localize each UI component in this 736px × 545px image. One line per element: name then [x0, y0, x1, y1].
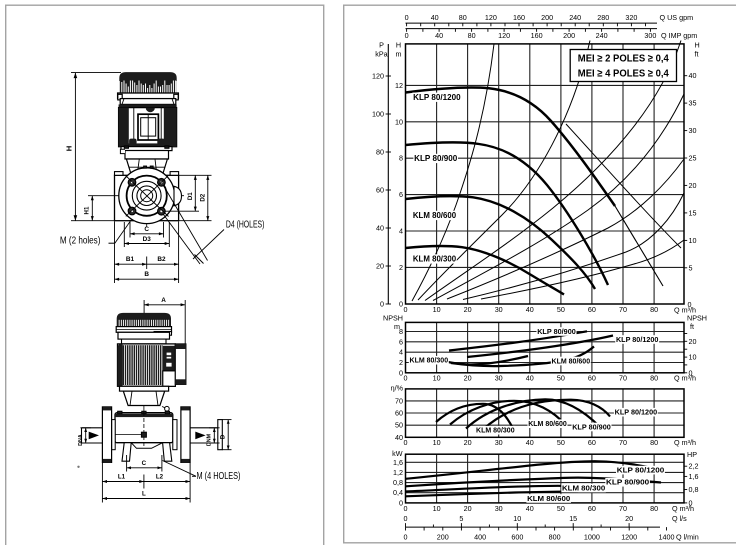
svg-text:40: 40 — [526, 373, 534, 382]
svg-text:HP: HP — [687, 450, 697, 459]
svg-text:ft: ft — [695, 50, 699, 59]
svg-text:η/%: η/% — [391, 383, 404, 392]
svg-text:20: 20 — [625, 514, 633, 523]
svg-text:KLM 80/600: KLM 80/600 — [528, 419, 567, 428]
svg-text:30: 30 — [495, 504, 503, 513]
svg-text:DNM: DNM — [207, 433, 213, 446]
svg-text:MEI ≥ 4 POLES ≥ 0,4: MEI ≥ 4 POLES ≥ 0,4 — [578, 69, 669, 80]
svg-text:10: 10 — [433, 504, 441, 513]
svg-text:1,2: 1,2 — [393, 468, 403, 477]
svg-text:15: 15 — [569, 514, 577, 523]
svg-text:200: 200 — [437, 533, 449, 542]
svg-text:30: 30 — [689, 126, 697, 135]
svg-text:0: 0 — [399, 368, 403, 377]
svg-text:280: 280 — [597, 13, 609, 22]
svg-text:10: 10 — [433, 305, 441, 314]
svg-text:H: H — [396, 41, 401, 50]
svg-text:KLP 80/1200: KLP 80/1200 — [616, 335, 659, 344]
svg-text:H: H — [64, 146, 73, 151]
svg-text:KLM 80/600: KLM 80/600 — [413, 210, 457, 220]
svg-text:120: 120 — [372, 72, 384, 81]
svg-text:ft: ft — [690, 322, 694, 331]
svg-text:30: 30 — [495, 373, 503, 382]
svg-text:2: 2 — [399, 358, 403, 367]
svg-text:80: 80 — [650, 438, 658, 447]
svg-text:Q l/min: Q l/min — [676, 533, 699, 542]
svg-text:20: 20 — [464, 504, 472, 513]
svg-text:80: 80 — [459, 13, 467, 22]
svg-text:KLM 80/300: KLM 80/300 — [476, 426, 515, 435]
svg-text:25: 25 — [689, 154, 697, 163]
svg-text:0: 0 — [404, 533, 408, 542]
svg-text:KLP 80/900: KLP 80/900 — [414, 153, 458, 163]
svg-text:15: 15 — [689, 208, 697, 217]
svg-text:0: 0 — [404, 305, 408, 314]
svg-text:L1: L1 — [118, 474, 126, 481]
svg-text:D2: D2 — [199, 193, 206, 201]
svg-text:70: 70 — [619, 438, 627, 447]
svg-text:30: 30 — [495, 438, 503, 447]
svg-text:KLP 80/1200: KLP 80/1200 — [413, 92, 461, 102]
svg-text:60: 60 — [588, 305, 596, 314]
svg-text:D1: D1 — [187, 192, 194, 200]
svg-text:40: 40 — [435, 31, 443, 40]
svg-text:2: 2 — [399, 263, 403, 272]
svg-text:320: 320 — [625, 13, 637, 22]
svg-text:Q m³/h: Q m³/h — [672, 504, 694, 513]
svg-text:1,6: 1,6 — [393, 458, 403, 467]
svg-text:KLM 80/300: KLM 80/300 — [562, 483, 605, 492]
svg-text:NPSH: NPSH — [383, 314, 403, 323]
svg-text:10: 10 — [513, 514, 521, 523]
svg-text:20: 20 — [464, 373, 472, 382]
svg-text:MEI ≥ 2 POLES ≥ 0,4: MEI ≥ 2 POLES ≥ 0,4 — [578, 54, 669, 65]
svg-text:70: 70 — [619, 504, 627, 513]
svg-text:6: 6 — [399, 190, 403, 199]
svg-text:D3: D3 — [143, 236, 152, 243]
svg-text:40: 40 — [689, 71, 697, 80]
svg-text:0: 0 — [405, 13, 409, 22]
svg-text:5: 5 — [459, 514, 463, 523]
svg-text:Q m³/h: Q m³/h — [674, 438, 696, 447]
svg-text:C: C — [142, 460, 147, 467]
svg-text:70: 70 — [619, 373, 627, 382]
svg-text:1,6: 1,6 — [689, 472, 699, 481]
svg-text:10: 10 — [689, 353, 697, 362]
svg-text:P: P — [379, 41, 384, 50]
svg-text:80: 80 — [376, 148, 384, 157]
svg-text:4: 4 — [399, 348, 403, 357]
svg-text:10: 10 — [433, 373, 441, 382]
svg-text:70: 70 — [395, 396, 403, 405]
svg-text:0,8: 0,8 — [393, 478, 403, 487]
svg-text:KLM 80/600: KLM 80/600 — [552, 356, 591, 365]
svg-text:Q US gpm: Q US gpm — [660, 13, 694, 22]
svg-text:0: 0 — [404, 373, 408, 382]
svg-text:DNA: DNA — [78, 434, 84, 446]
svg-text:M (2 holes): M (2 holes) — [60, 235, 101, 246]
svg-text:1200: 1200 — [621, 533, 637, 542]
svg-text:0: 0 — [380, 300, 384, 309]
svg-text:2,2: 2,2 — [689, 462, 699, 471]
svg-text:40: 40 — [526, 438, 534, 447]
svg-text:kPa: kPa — [375, 50, 387, 59]
svg-text:10: 10 — [395, 117, 403, 126]
svg-text:H: H — [695, 41, 700, 50]
svg-text:40: 40 — [376, 224, 384, 233]
svg-text:Q l/s: Q l/s — [672, 514, 687, 523]
svg-text:B2: B2 — [157, 256, 166, 263]
svg-text:160: 160 — [531, 31, 543, 40]
svg-text:0: 0 — [399, 299, 403, 308]
svg-text:20: 20 — [376, 262, 384, 271]
svg-text:50: 50 — [557, 305, 565, 314]
svg-text:10: 10 — [433, 438, 441, 447]
svg-text:100: 100 — [372, 110, 384, 119]
svg-text:M (4 HOLES): M (4 HOLES) — [197, 471, 241, 482]
svg-text:KLM 80/600: KLM 80/600 — [527, 494, 570, 503]
svg-text:80: 80 — [468, 31, 476, 40]
svg-text:0: 0 — [404, 438, 408, 447]
svg-text:0: 0 — [399, 498, 403, 507]
svg-text:80: 80 — [650, 373, 658, 382]
svg-text:0,8: 0,8 — [689, 485, 699, 494]
svg-text:B1: B1 — [126, 256, 135, 263]
svg-text:6: 6 — [399, 337, 403, 346]
svg-text:120: 120 — [498, 31, 510, 40]
svg-text:1400: 1400 — [659, 533, 675, 542]
svg-text:KLP 80/900: KLP 80/900 — [606, 478, 649, 487]
svg-text:30: 30 — [495, 305, 503, 314]
svg-text:20: 20 — [689, 181, 697, 190]
svg-text:35: 35 — [689, 99, 697, 108]
svg-text:200: 200 — [541, 13, 553, 22]
svg-text:20: 20 — [689, 337, 697, 346]
svg-text:L: L — [142, 490, 146, 497]
svg-text:60: 60 — [395, 409, 403, 418]
svg-text:m: m — [396, 50, 402, 59]
svg-text:KLM 80/300: KLM 80/300 — [413, 254, 457, 264]
svg-text:KLP 80/900: KLP 80/900 — [537, 327, 576, 336]
svg-text:m: m — [394, 322, 400, 331]
svg-text:Q IMP gpm: Q IMP gpm — [661, 31, 697, 40]
svg-text:80: 80 — [650, 305, 658, 314]
svg-text:40: 40 — [526, 305, 534, 314]
svg-text:50: 50 — [557, 373, 565, 382]
svg-text:200: 200 — [563, 31, 575, 40]
svg-text:A: A — [161, 297, 166, 304]
svg-text:KLP 80/1200: KLP 80/1200 — [617, 465, 665, 474]
svg-text:40: 40 — [526, 504, 534, 513]
svg-text:0: 0 — [404, 504, 408, 513]
svg-text:8: 8 — [399, 154, 403, 163]
svg-text:KLM 80/300: KLM 80/300 — [410, 356, 449, 365]
svg-text:240: 240 — [596, 31, 608, 40]
svg-text:1000: 1000 — [584, 533, 600, 542]
svg-text:KLP 80/900: KLP 80/900 — [572, 422, 611, 431]
svg-text:KLP 80/1200: KLP 80/1200 — [615, 408, 658, 417]
svg-text:50: 50 — [395, 421, 403, 430]
svg-text:240: 240 — [569, 13, 581, 22]
svg-text:50: 50 — [557, 504, 565, 513]
svg-text:60: 60 — [588, 373, 596, 382]
svg-text:10: 10 — [689, 236, 697, 245]
svg-text:60: 60 — [588, 504, 596, 513]
svg-text:600: 600 — [511, 533, 523, 542]
svg-text:40: 40 — [395, 433, 403, 442]
svg-text:5: 5 — [689, 263, 693, 272]
svg-text:C: C — [144, 226, 149, 233]
svg-text:800: 800 — [549, 533, 561, 542]
svg-text:0: 0 — [405, 31, 409, 40]
svg-text:H1: H1 — [84, 206, 91, 214]
svg-text:B: B — [144, 271, 149, 278]
svg-text:20: 20 — [464, 305, 472, 314]
svg-text:160: 160 — [513, 13, 525, 22]
svg-text:60: 60 — [376, 186, 384, 195]
svg-text:80: 80 — [650, 504, 658, 513]
svg-text:70: 70 — [619, 305, 627, 314]
svg-text:0,4: 0,4 — [393, 488, 403, 497]
svg-text:20: 20 — [464, 438, 472, 447]
svg-text:400: 400 — [474, 533, 486, 542]
svg-text:L2: L2 — [156, 474, 164, 481]
svg-text:D: D — [221, 434, 227, 439]
svg-text:D4 (HOLES): D4 (HOLES) — [226, 220, 265, 231]
svg-text:kW: kW — [392, 449, 403, 458]
svg-text:0: 0 — [404, 514, 408, 523]
svg-text:300: 300 — [644, 31, 656, 40]
svg-text:120: 120 — [485, 13, 497, 22]
svg-text:50: 50 — [557, 438, 565, 447]
svg-text:40: 40 — [431, 13, 439, 22]
svg-text:12: 12 — [395, 81, 403, 90]
svg-text:Q m³/h: Q m³/h — [674, 373, 696, 382]
svg-text:60: 60 — [588, 438, 596, 447]
svg-text:4: 4 — [399, 227, 403, 236]
